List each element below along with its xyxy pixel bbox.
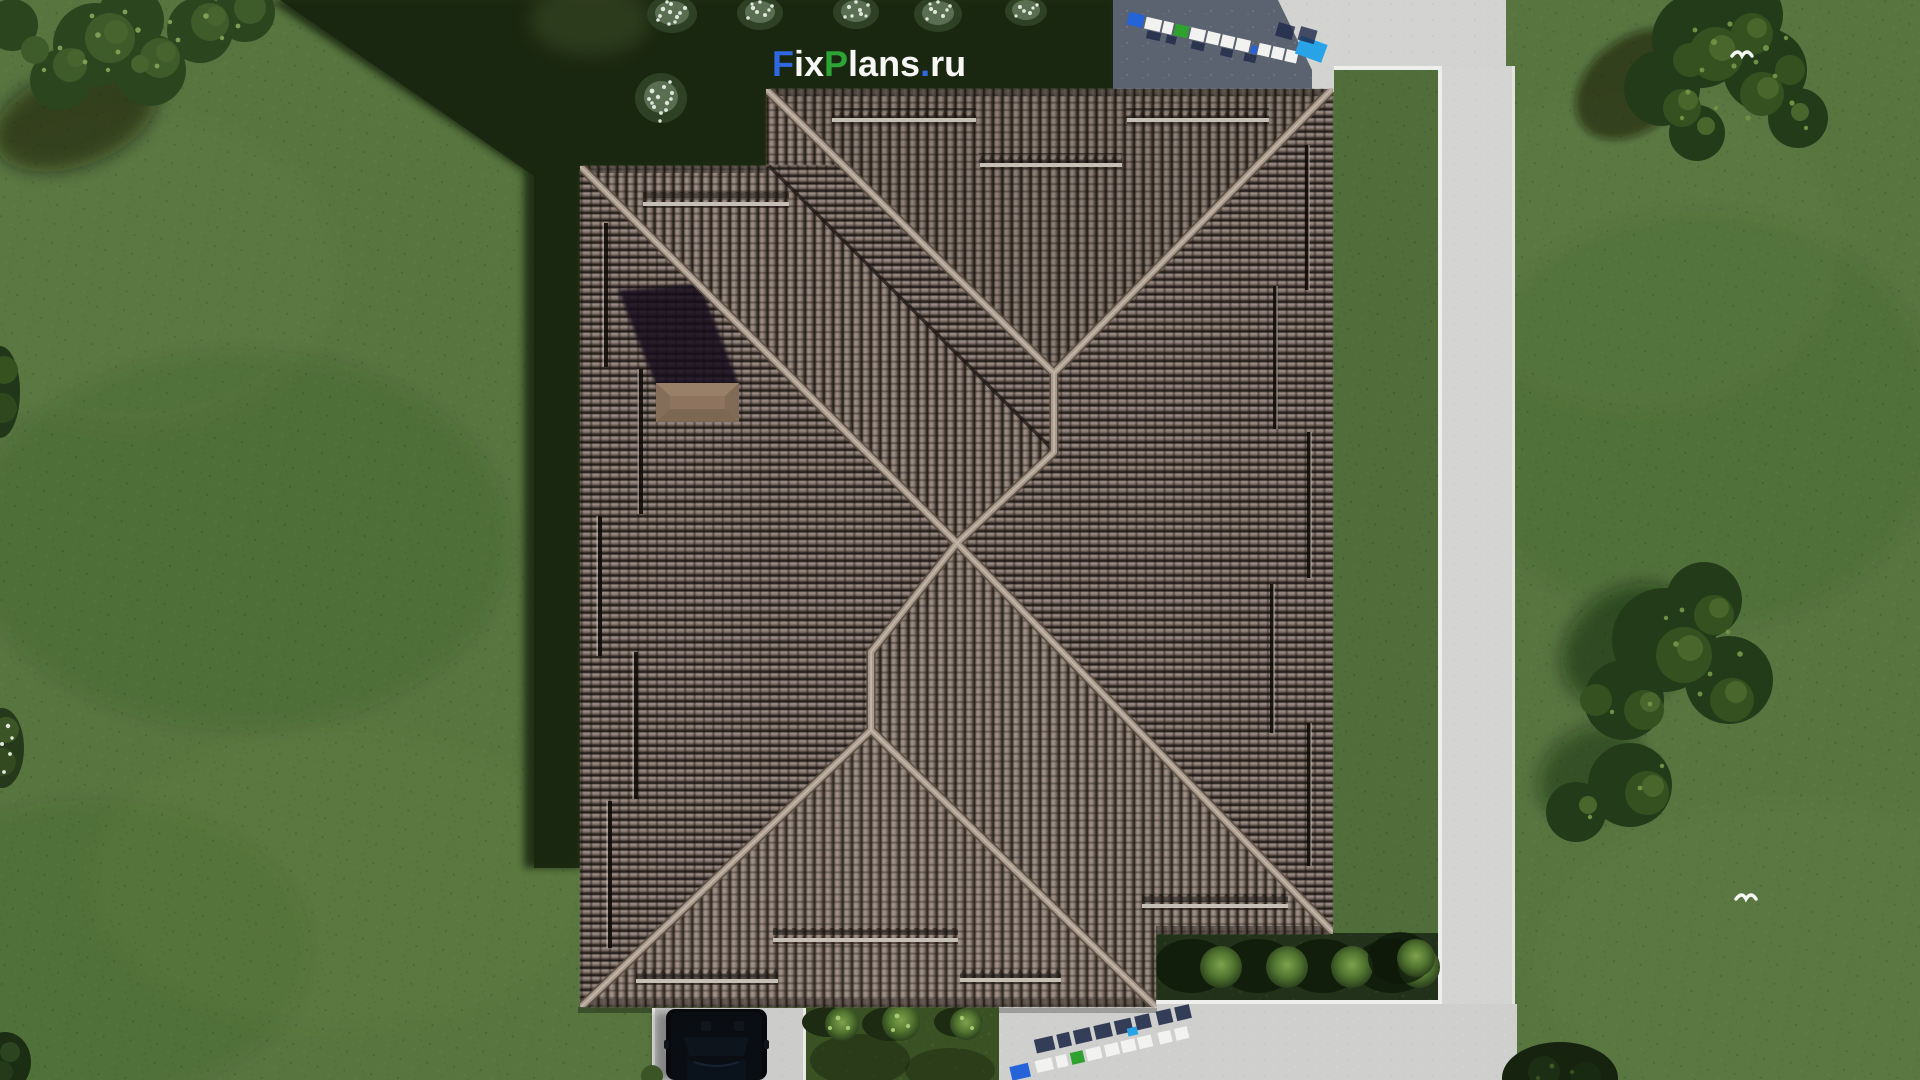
svg-text:FixPlans.ru: FixPlans.ru [772, 43, 966, 84]
